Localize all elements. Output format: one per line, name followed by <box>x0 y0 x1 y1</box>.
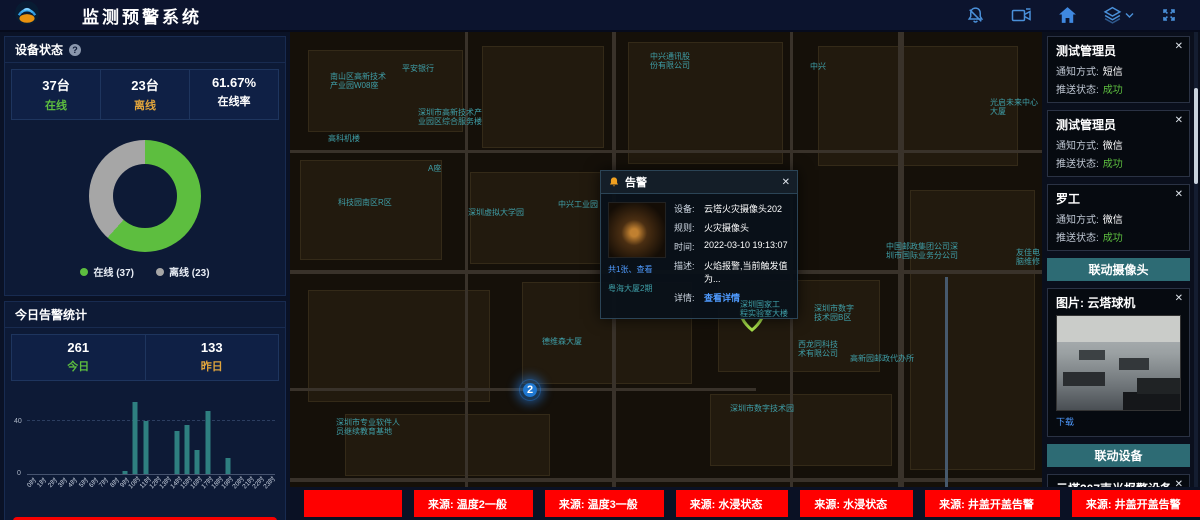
view-detail-link[interactable]: 查看详情 <box>704 291 740 304</box>
map-canvas[interactable]: 2 告警 ✕ 共1张、查看 设备:云塔火灾摄像头202 <box>290 32 1042 487</box>
stat-offline: 23台 离线 <box>100 70 189 119</box>
bar-slot: 4时 <box>68 395 78 474</box>
map-place-label: 深圳虚拟大学园 <box>468 208 524 217</box>
bar-slot: 8时 <box>110 395 120 474</box>
card-close-icon[interactable]: ✕ <box>1175 41 1183 52</box>
fullscreen-toggle-icon[interactable] <box>1160 6 1178 24</box>
bar-slot: 11时 <box>141 395 151 474</box>
cluster-count: 2 <box>527 384 533 396</box>
linked-camera-section-header: 联动摄像头 <box>1047 258 1190 281</box>
map-building-block <box>818 46 1018 166</box>
stat-yesterday: 133 昨日 <box>145 335 279 380</box>
map-place-label: 友佳电脑维修 <box>1016 248 1042 266</box>
bar-slot: 10时 <box>130 395 140 474</box>
device-card-title: 云塔307声光报警设备 <box>1056 480 1181 487</box>
bar-slot: 3时 <box>58 395 68 474</box>
alarm-popup: 告警 ✕ 共1张、查看 设备:云塔火灾摄像头202 规则:火灾摄像头 时间:2 <box>600 170 798 319</box>
map-building-block <box>470 172 602 264</box>
app-logo-icon <box>14 0 40 31</box>
today-alarm-title: 今日告警统计 <box>15 306 87 323</box>
donut-legend-online-dot <box>80 268 88 276</box>
scrollbar-track <box>1194 32 1198 487</box>
map-place-label: 深圳市数字 技术园B区 <box>814 304 854 322</box>
camera-card-title: 图片: 云塔球机 <box>1056 294 1181 311</box>
popup-field-description: 描述:火焰报警,当前触发值为... <box>674 259 790 285</box>
page-title: 监测预警系统 <box>82 3 202 28</box>
bar-slot: 18时 <box>213 395 223 474</box>
device-card: ✕ 云塔307声光报警设备 设备编码:ffffff100001ab6c 调用服务… <box>1047 474 1190 487</box>
help-icon[interactable]: ? <box>69 44 81 56</box>
donut-legend-offline-label: 离线 (23) <box>169 264 210 279</box>
card-close-icon[interactable]: ✕ <box>1175 293 1183 304</box>
notify-title: 测试管理员 <box>1056 116 1181 133</box>
map-place-label: 中兴 <box>810 62 826 71</box>
today-alarm-stats: 261 今日 133 昨日 <box>11 334 279 381</box>
alarm-popup-title: 告警 <box>625 174 777 190</box>
map-road <box>465 32 468 487</box>
ticker-alarm-item[interactable]: 来源: 温度2一般 <box>414 490 533 517</box>
bar-slot: 12时 <box>151 395 161 474</box>
map-place-label: 深圳市专业软件人 员继续教育基地 <box>336 418 400 436</box>
map-waterline <box>945 277 948 487</box>
notify-title: 测试管理员 <box>1056 42 1181 59</box>
alarm-snapshot-links[interactable]: 共1张、查看 <box>608 264 666 275</box>
alarm-bell-icon <box>608 176 620 189</box>
notification-bell-icon[interactable] <box>966 6 985 25</box>
today-alarm-bar-chart: 40 0 0时1时2时3时4时5时6时7时8时9时10时11时12时13时14时… <box>11 387 279 507</box>
stat-today: 261 今日 <box>12 335 145 380</box>
map-place-label: 德维森大厦 <box>542 337 582 346</box>
popup-field-rule: 规则:火灾摄像头 <box>674 221 790 234</box>
left-sidebar: 设备状态 ? 37台 在线 23台 离线 61.67% 在线率 <box>0 32 290 520</box>
bar-slot: 1时 <box>37 395 47 474</box>
map-place-label: 深圳国家工 程实验室大楼 <box>740 300 788 318</box>
bar-slot: 0时 <box>27 395 37 474</box>
bar-slot: 6时 <box>89 395 99 474</box>
map-building-block <box>482 46 604 148</box>
map-place-label: 科技园南区R区 <box>338 198 392 207</box>
bar-slot: 21时 <box>244 395 254 474</box>
stat-online-rate: 61.67% 在线率 <box>189 70 278 119</box>
ticker-alarm-item[interactable]: 来源: 井盖开盖告警 <box>1072 490 1200 517</box>
ticker-alarm-item[interactable] <box>304 490 402 517</box>
bar <box>174 431 179 474</box>
bar-slot: 16时 <box>192 395 202 474</box>
device-status-title: 设备状态 <box>15 41 63 58</box>
ticker-alarm-item[interactable]: 来源: 水浸状态 <box>800 490 913 517</box>
bar-slot: 19时 <box>223 395 233 474</box>
map-place-label: 中兴工业园 <box>558 200 598 209</box>
bar-slot: 13时 <box>161 395 171 474</box>
right-sidebar: ✕ 测试管理员 通知方式:短信 推送状态:成功 ✕ 测试管理员 通知方式:微信 … <box>1042 32 1200 487</box>
donut-legend-online-label: 在线 (37) <box>93 264 134 279</box>
notify-card: ✕ 罗工 通知方式:微信 推送状态:成功 <box>1047 184 1190 251</box>
device-status-stats: 37台 在线 23台 离线 61.67% 在线率 <box>11 69 279 120</box>
notify-title: 罗工 <box>1056 190 1181 207</box>
bar <box>185 425 190 474</box>
card-close-icon[interactable]: ✕ <box>1175 115 1183 126</box>
bar-slot: 23时 <box>265 395 275 474</box>
map-place-label: 深圳市数字技术园 <box>730 404 794 413</box>
linked-device-section-header: 联动设备 <box>1047 444 1190 467</box>
map-road <box>290 478 1042 482</box>
popup-field-device: 设备:云塔火灾摄像头202 <box>674 202 790 215</box>
alarm-ytick-label: 40 <box>14 418 22 425</box>
download-link[interactable]: 下载 <box>1056 415 1074 428</box>
map-building-block <box>308 290 490 402</box>
map-place-label: 光启未来中心大厦 <box>990 98 1042 116</box>
monitoring-dashboard: 监测预警系统 <box>0 0 1200 520</box>
video-camera-icon[interactable] <box>1011 7 1032 24</box>
bar <box>226 458 231 474</box>
bar-slot: 22时 <box>254 395 264 474</box>
alarm-ticker-bar: 来源: 温度2一般来源: 温度3一般来源: 水浸状态来源: 水浸状态来源: 井盖… <box>290 487 1200 520</box>
map-place-label: 南山区高新技术 产业园W08座 <box>330 72 386 90</box>
bar <box>205 411 210 474</box>
map-building-block <box>910 190 1035 470</box>
layers-icon[interactable] <box>1103 6 1134 24</box>
notify-card: ✕ 测试管理员 通知方式:短信 推送状态:成功 <box>1047 36 1190 103</box>
popup-close-icon[interactable]: ✕ <box>782 177 790 188</box>
app-header: 监测预警系统 <box>0 0 1200 32</box>
ticker-alarm-item[interactable]: 来源: 温度3一般 <box>545 490 664 517</box>
header-toolbar <box>966 6 1186 25</box>
donut-legend-offline-dot <box>156 268 164 276</box>
ticker-items: 来源: 温度2一般来源: 温度3一般来源: 水浸状态来源: 水浸状态来源: 井盖… <box>304 490 1200 517</box>
bar-slot: 5时 <box>79 395 89 474</box>
bar-slot: 14时 <box>172 395 182 474</box>
bar-slot: 2时 <box>48 395 58 474</box>
bar-slot: 20时 <box>234 395 244 474</box>
map-place-label: 平安银行 <box>402 64 434 73</box>
map-place-label: 高科机楼 <box>328 134 360 143</box>
camera-card: ✕ 图片: 云塔球机 下载 <box>1047 288 1190 437</box>
scrollbar-thumb[interactable] <box>1194 88 1198 184</box>
home-icon[interactable] <box>1058 6 1077 24</box>
donut-legend: 在线 (37) 离线 (23) <box>5 264 285 289</box>
alarm-yzero-label: 0 <box>17 470 21 477</box>
notify-card: ✕ 测试管理员 通知方式:微信 推送状态:成功 <box>1047 110 1190 177</box>
map-place-label: 高新园邮政代办所 <box>850 354 914 363</box>
device-status-donut <box>89 140 201 252</box>
chevron-down-icon <box>1125 12 1134 19</box>
device-status-panel: 设备状态 ? 37台 在线 23台 离线 61.67% 在线率 <box>4 36 286 296</box>
stat-online: 37台 在线 <box>12 70 100 119</box>
map-building-block <box>300 160 442 260</box>
popup-field-time: 时间:2022-03-10 19:13:07 <box>674 240 790 253</box>
map-place-label: A座 <box>428 164 441 173</box>
alarm-bar-plot: 0时1时2时3时4时5时6时7时8时9时10时11时12时13时14时15时16… <box>27 395 275 474</box>
bar <box>195 450 200 474</box>
map-place-label: 深圳市高新技术产 业园区综合服务楼 <box>418 108 482 126</box>
ticker-alarm-item[interactable]: 来源: 井盖开盖告警 <box>925 490 1060 517</box>
camera-snapshot-image[interactable] <box>1056 315 1181 411</box>
map-place-label: 中兴通讯股 份有限公司 <box>650 52 690 70</box>
alarm-snapshot-image[interactable] <box>608 202 666 258</box>
bar-slot: 17时 <box>203 395 213 474</box>
card-close-icon[interactable]: ✕ <box>1175 189 1183 200</box>
map-road <box>290 150 1042 153</box>
today-alarm-panel: 今日告警统计 261 今日 133 昨日 40 0 0时1时2时3时4时5时6时… <box>4 301 286 520</box>
ticker-alarm-item[interactable]: 来源: 水浸状态 <box>676 490 789 517</box>
bar <box>143 421 148 474</box>
map-place-label: 中国邮政集团公司深 圳市国际业务分公司 <box>886 242 958 260</box>
map-place-label: 西龙同科技 术有限公司 <box>798 340 838 358</box>
bar-slot: 15时 <box>182 395 192 474</box>
map-cluster-marker[interactable]: 2 <box>519 379 541 401</box>
bar-slot: 9时 <box>120 395 130 474</box>
card-close-icon[interactable]: ✕ <box>1175 479 1183 487</box>
bar <box>133 402 138 474</box>
bar-slot: 7时 <box>99 395 109 474</box>
map-place-label: 粤海大厦2期 <box>608 284 652 293</box>
